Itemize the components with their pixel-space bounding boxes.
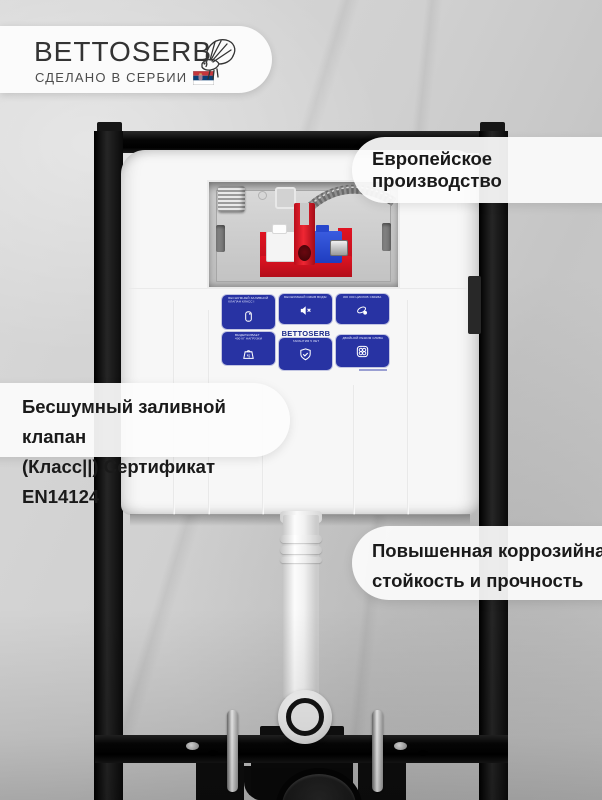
brand-name: BETTOSERB (34, 37, 212, 67)
bar-hole-glint-right (394, 742, 407, 750)
fill-valve-icon (241, 309, 256, 324)
frame-clamp-right (468, 276, 481, 334)
bar-hole-right (418, 750, 428, 756)
blue-valve-tab (316, 225, 329, 232)
threaded-rod-right (372, 710, 383, 792)
side-slot-right (382, 223, 391, 251)
screw-dot (258, 191, 267, 200)
cistern-seam (353, 385, 355, 515)
pipe-coupling-seal-ring (286, 698, 324, 736)
threaded-rod-left (227, 710, 238, 792)
shield-check-icon (298, 347, 313, 362)
betta-fish-icon (190, 32, 242, 86)
cistern-seam (407, 300, 409, 515)
callout-corrosion-resistance: Повышенная коррозийная стойкость и прочн… (352, 526, 602, 600)
water-inlet-fitting (218, 186, 245, 212)
product-photo-concealed-cistern: БЕСШУМНЫЙ ЗАЛИВНОЙКЛАПАН КЛАСС I БЕСШУМН… (0, 0, 602, 800)
bar-hole-left (208, 750, 218, 756)
white-valve-tab (272, 224, 287, 234)
flush-mechanism (254, 201, 356, 280)
sticker-brand-name: BETTOSERB (282, 329, 331, 338)
red-tongue-hole (298, 245, 311, 261)
callout-text: Европейское производство (372, 148, 602, 192)
bar-hole-glint-left (186, 742, 199, 750)
frame-rail-right (479, 131, 508, 800)
flush-pipe-ring (280, 557, 322, 563)
badge-dual-flush: ДВОЙНОЙ РЕЖИМ СЛИВА (336, 335, 389, 367)
svg-text:kg: kg (247, 354, 251, 358)
callout-line: стойкость и прочность (372, 570, 583, 591)
flush-pipe-ring (280, 546, 322, 554)
dual-flush-icon (355, 344, 370, 359)
badge-silent-flush: БЕСШУМНЫЙ СМЫВ ВОДЫ (279, 294, 332, 324)
white-valve-component (266, 231, 296, 262)
flush-pipe-ring (280, 535, 322, 543)
brand-tagline: СДЕЛАНО В СЕРБИИ (35, 70, 187, 85)
callout-line: Бесшумный заливной клапан (22, 396, 226, 447)
chrome-nut (330, 240, 348, 256)
badge-flush-cycles: 300 000 ЦИКЛОВ СМЫВА (336, 294, 389, 324)
badge-load-capacity: ВЫДЕРЖИВАЕТ400 КГ НАГРУЗКИ kg (222, 332, 275, 365)
brand-header: BETTOSERB СДЕЛАНО В СЕРБИИ (0, 26, 272, 93)
brand-tagline-row: СДЕЛАНО В СЕРБИИ (35, 70, 214, 85)
red-tongue-notch (300, 203, 309, 225)
sticker-code-line (359, 369, 387, 371)
pipe-coupling (278, 690, 332, 744)
callout-line: Повышенная коррозийная (372, 540, 602, 561)
flush-cycles-icon (355, 303, 370, 318)
weight-kg-icon: kg (241, 346, 256, 361)
badge-warranty: ГАРАНТИЯ 5 ЛЕТ (279, 338, 332, 370)
callout-european-production: Европейское производство (352, 137, 602, 203)
feature-sticker: БЕСШУМНЫЙ ЗАЛИВНОЙКЛАПАН КЛАСС I БЕСШУМН… (221, 293, 391, 375)
muted-speaker-icon (298, 303, 313, 318)
side-slot-left (216, 225, 225, 252)
callout-silent-valve: Бесшумный заливной клапан (Класс||) Серт… (0, 383, 290, 457)
badge-fill-valve: БЕСШУМНЫЙ ЗАЛИВНОЙКЛАПАН КЛАСС I (222, 295, 275, 329)
